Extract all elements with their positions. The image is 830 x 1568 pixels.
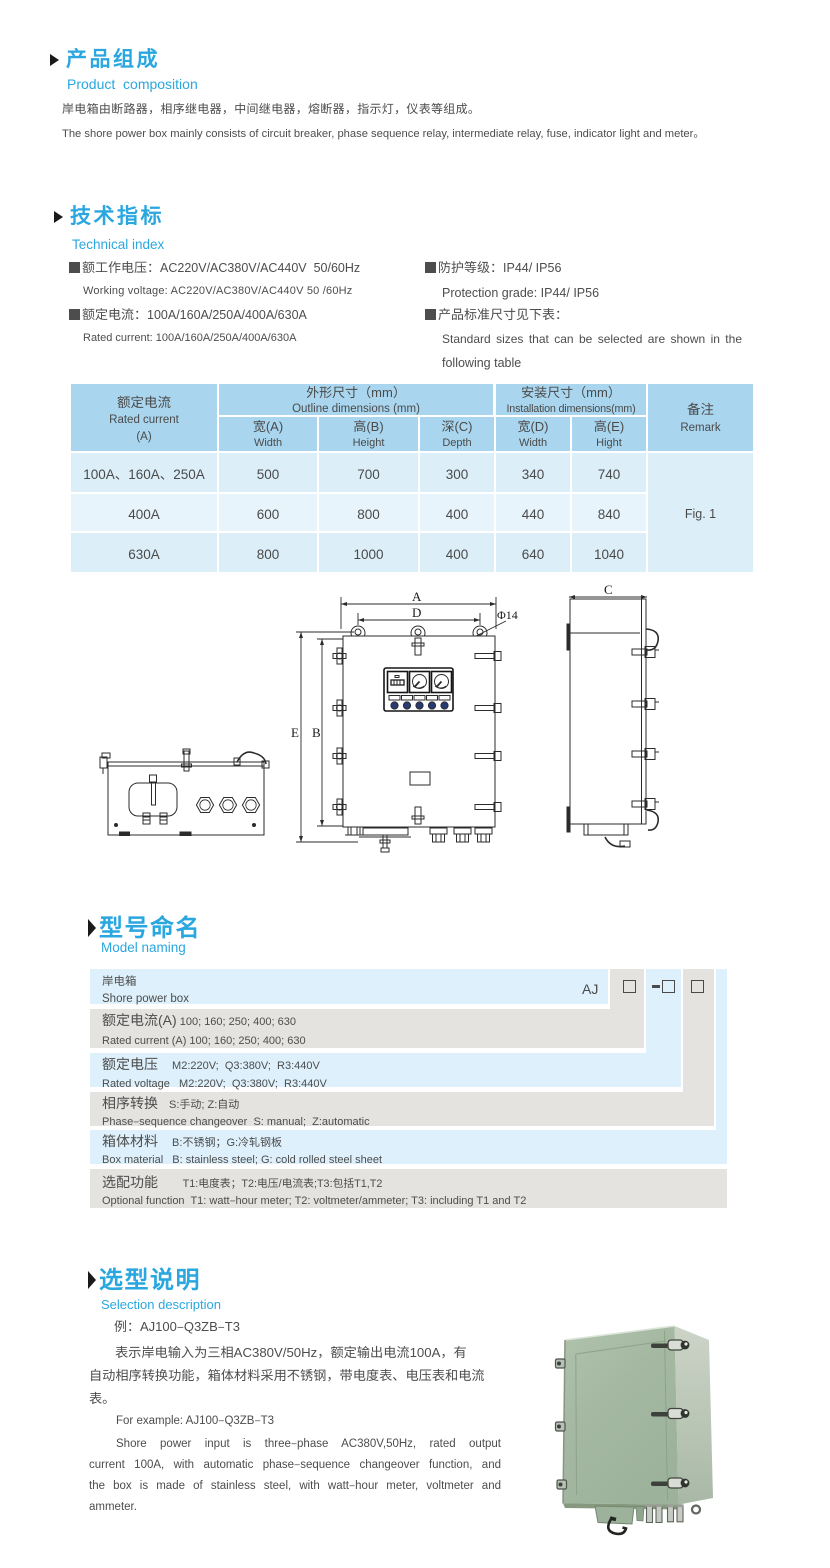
- svg-text:D: D: [412, 605, 421, 620]
- svg-text:C: C: [604, 585, 613, 597]
- svg-text:A: A: [412, 589, 422, 604]
- svg-text:Φ14: Φ14: [497, 608, 518, 622]
- svg-text:B: B: [312, 725, 321, 740]
- svg-text:E: E: [291, 725, 299, 740]
